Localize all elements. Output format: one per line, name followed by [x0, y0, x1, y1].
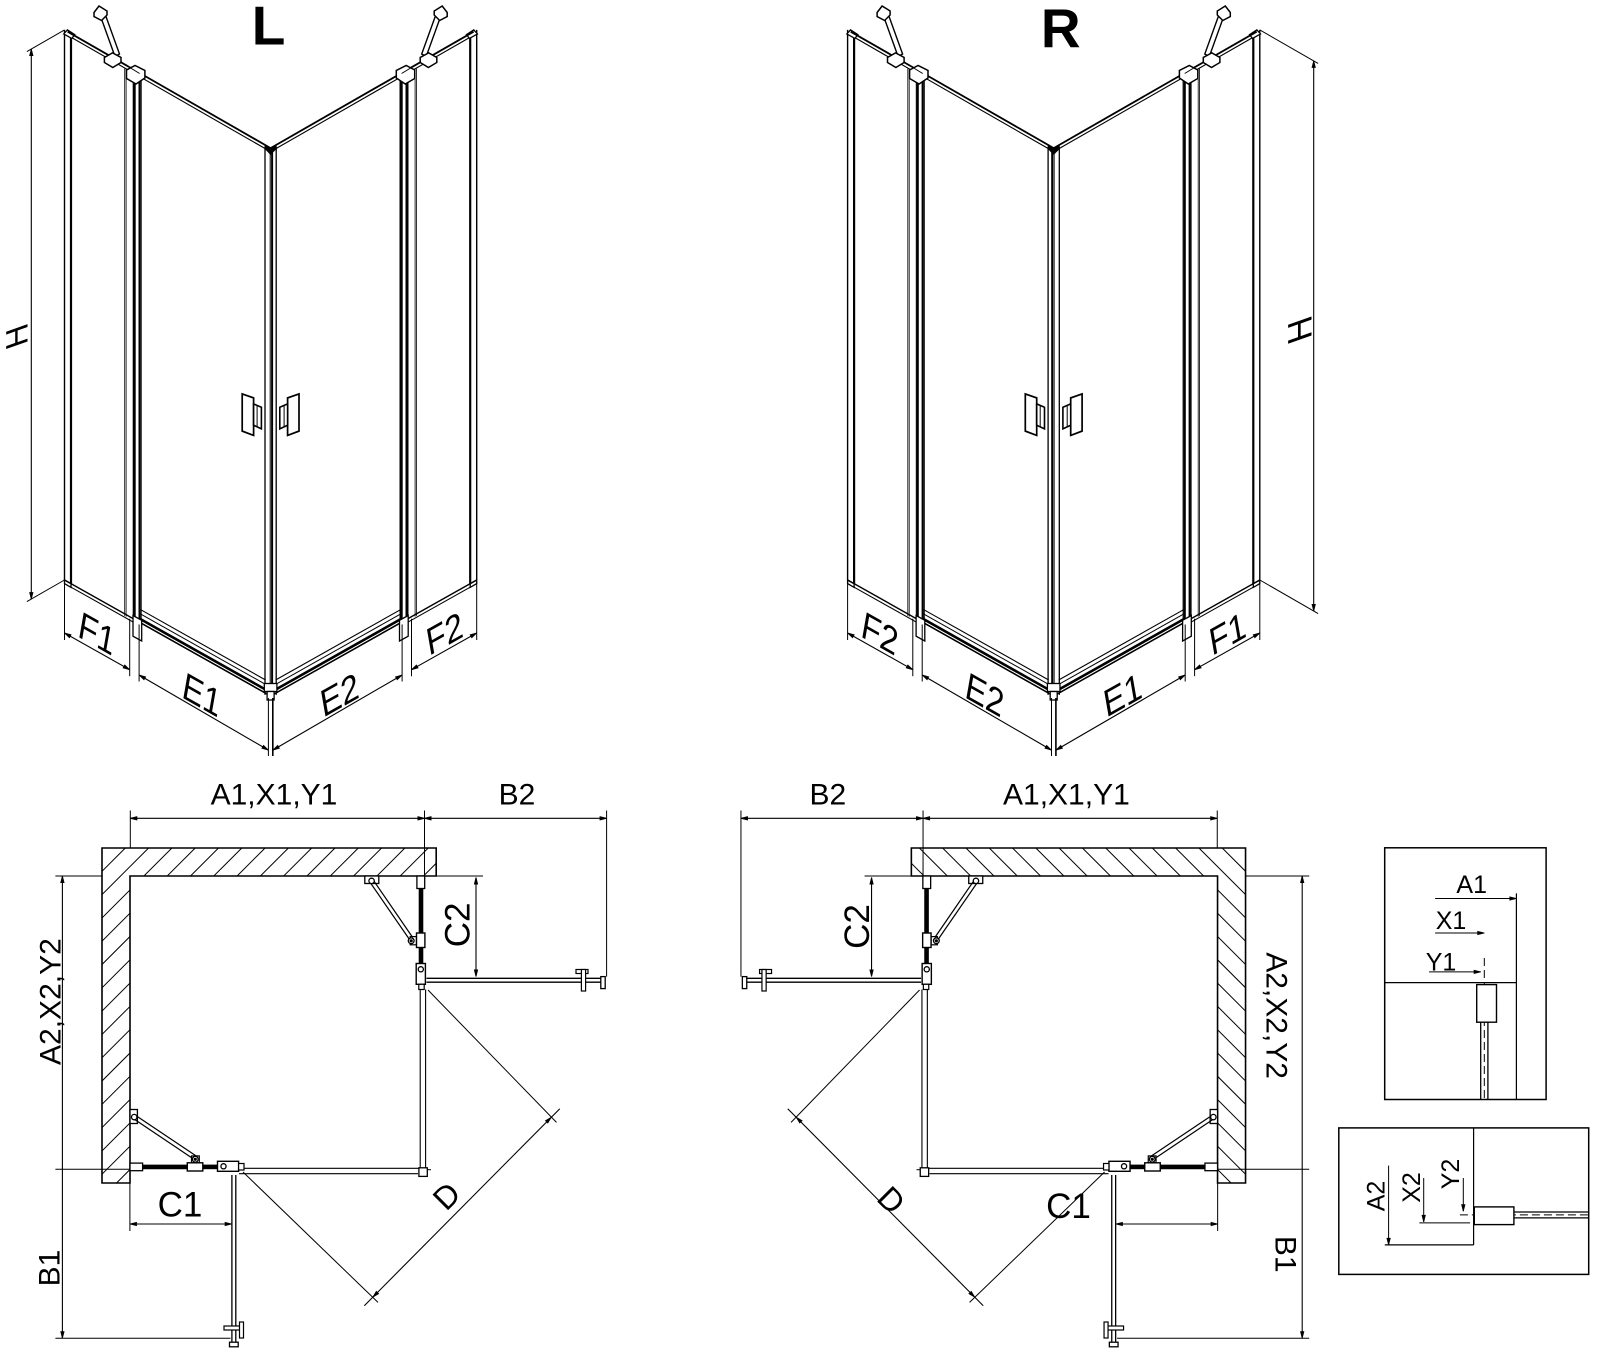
svg-text:A2,X2,Y2: A2,X2,Y2 [35, 938, 68, 1065]
svg-text:B1: B1 [33, 1250, 66, 1287]
svg-text:C1: C1 [1046, 1187, 1091, 1226]
svg-text:F1: F1 [75, 603, 118, 665]
svg-text:X1: X1 [1436, 907, 1467, 935]
svg-text:F2: F2 [423, 603, 466, 665]
svg-text:A1,X1,Y1: A1,X1,Y1 [211, 779, 338, 812]
svg-text:H: H [0, 319, 34, 354]
svg-text:Y2: Y2 [1437, 1159, 1465, 1190]
svg-text:Y1: Y1 [1426, 949, 1457, 977]
svg-text:L: L [252, 0, 286, 56]
svg-text:X2: X2 [1398, 1172, 1426, 1203]
svg-text:B2: B2 [499, 779, 536, 812]
svg-text:E2: E2 [317, 663, 362, 726]
svg-text:E1: E1 [179, 663, 224, 726]
svg-text:A1,X1,Y1: A1,X1,Y1 [1003, 779, 1130, 812]
svg-text:F1: F1 [1206, 603, 1249, 665]
svg-text:D: D [426, 1175, 468, 1217]
svg-text:A1: A1 [1456, 871, 1487, 899]
svg-text:F2: F2 [858, 603, 901, 665]
svg-text:C2: C2 [438, 903, 477, 948]
svg-text:A2: A2 [1363, 1181, 1391, 1212]
svg-text:R: R [1041, 0, 1081, 59]
svg-text:B1: B1 [1269, 1236, 1302, 1273]
svg-text:B2: B2 [810, 779, 847, 812]
svg-text:E1: E1 [1100, 663, 1145, 726]
svg-text:D: D [870, 1179, 912, 1221]
svg-text:C1: C1 [158, 1185, 203, 1224]
svg-text:E2: E2 [962, 663, 1007, 726]
svg-text:A2,X2,Y2: A2,X2,Y2 [1259, 952, 1292, 1079]
svg-text:C2: C2 [838, 904, 877, 949]
